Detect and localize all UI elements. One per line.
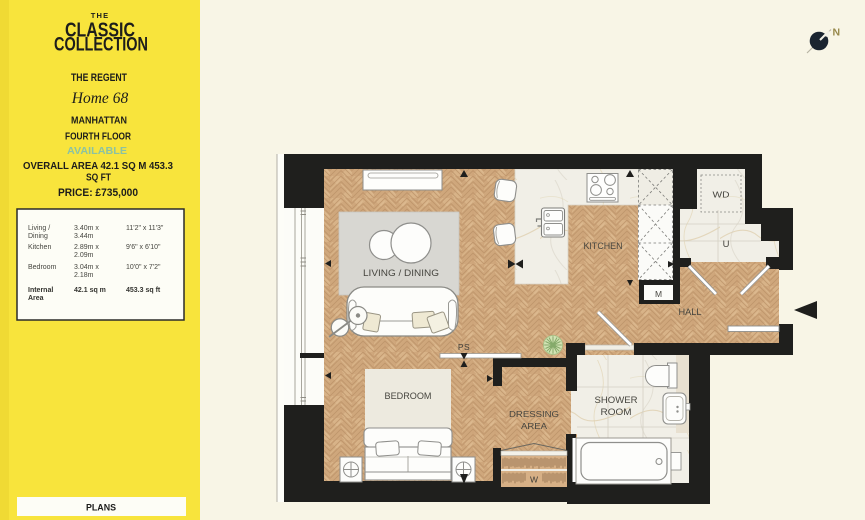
svg-text:AVAILABLE: AVAILABLE [67, 145, 127, 157]
svg-text:11'2" x 11'3": 11'2" x 11'3" [126, 225, 164, 232]
svg-text:N: N [833, 27, 841, 39]
svg-text:10'0" x 7'2": 10'0" x 7'2" [126, 264, 161, 271]
svg-text:Bedroom: Bedroom [28, 264, 57, 271]
svg-text:BEDROOM: BEDROOM [385, 391, 432, 402]
svg-text:FOURTH FLOOR: FOURTH FLOOR [65, 131, 131, 143]
svg-text:42.1 sq m: 42.1 sq m [74, 287, 106, 294]
svg-text:PLANS: PLANS [86, 503, 116, 514]
svg-text:OVERALL AREA 42.1 SQ M 453.3: OVERALL AREA 42.1 SQ M 453.3 [23, 160, 173, 172]
svg-text:MANHATTAN: MANHATTAN [71, 115, 127, 127]
svg-text:U: U [723, 239, 730, 250]
svg-text:2.18m: 2.18m [74, 272, 94, 279]
svg-text:3.40m x: 3.40m x [74, 225, 99, 232]
svg-text:Internal: Internal [28, 287, 53, 294]
svg-text:M: M [655, 289, 662, 299]
svg-text:PS: PS [458, 342, 470, 352]
svg-text:3.44m: 3.44m [74, 233, 94, 240]
svg-text:2.09m: 2.09m [74, 252, 94, 259]
svg-text:Dining: Dining [28, 233, 48, 240]
svg-text:DRESSING: DRESSING [509, 409, 559, 419]
svg-text:SHOWER: SHOWER [595, 395, 639, 405]
svg-text:PRICE: £735,000: PRICE: £735,000 [58, 187, 138, 199]
svg-text:AREA: AREA [521, 421, 547, 431]
svg-text:WD: WD [713, 190, 730, 200]
svg-text:SQ FT: SQ FT [86, 172, 111, 184]
svg-text:Living /: Living / [28, 225, 50, 232]
svg-text:Area: Area [28, 295, 44, 302]
svg-text:LIVING / DINING: LIVING / DINING [363, 268, 439, 278]
svg-text:KITCHEN: KITCHEN [584, 241, 623, 251]
svg-text:2.89m x: 2.89m x [74, 244, 99, 251]
svg-text:COLLECTION: COLLECTION [54, 35, 148, 56]
svg-text:THE REGENT: THE REGENT [71, 72, 127, 84]
svg-text:HALL: HALL [679, 307, 702, 317]
svg-text:453.3 sq ft: 453.3 sq ft [126, 287, 161, 294]
svg-text:Home 68: Home 68 [71, 90, 129, 107]
svg-text:W: W [530, 475, 538, 485]
svg-text:ROOM: ROOM [601, 407, 632, 417]
svg-text:9'6" x 6'10": 9'6" x 6'10" [126, 244, 161, 251]
svg-text:Kitchen: Kitchen [28, 244, 51, 251]
svg-text:3.04m x: 3.04m x [74, 264, 99, 271]
